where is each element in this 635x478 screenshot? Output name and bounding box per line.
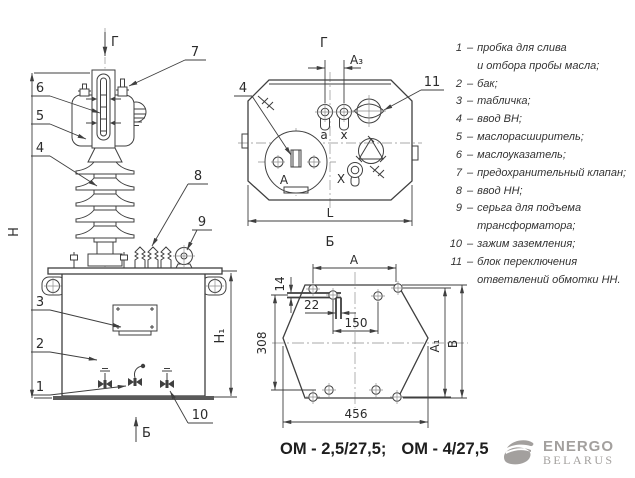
legend-item: 5–маслорасширитель; [441,129,635,147]
legend-dash: – [467,111,473,129]
legend-item-number: 3 [441,93,462,111]
callout-top-11: 11 [424,75,441,90]
dim-22: 22 [304,298,319,312]
breather-fitting [78,84,91,96]
logo-text: ENERGO BELARUS [543,439,614,467]
legend-item-number: 5 [441,129,462,147]
tank-lid [48,268,222,274]
hv-bushing-top: А [265,131,327,193]
terminal-label-a: a [320,128,327,142]
legend-item-text: маслоуказатель; [477,147,635,165]
dim-14: 14 [273,276,287,291]
dim-l: L [327,206,334,220]
legend-item-number: 2 [441,76,462,94]
legend-item: 11–блок переключения ответвлений обмотки… [441,254,635,290]
callout-4: 4 [36,141,44,156]
top-view-bottom-label: Б [326,235,335,250]
legend-item-text: зажим заземления; [477,236,635,254]
logo-line-energo: ENERGO [543,439,614,454]
legend-item-number: 4 [441,111,462,129]
legend-item-text: блок переключения ответвлений обмотки НН… [477,254,635,290]
legend-item-number: 10 [441,236,462,254]
dim-height-tank: H₁ [213,329,228,344]
legend-item: 9–серьга для подъема трансформатора; [441,200,635,236]
mounting-holes [306,281,405,404]
legend-item: 8–ввод НН; [441,183,635,201]
legend-item-number: 6 [441,147,462,165]
dim-a1: A₁ [428,339,442,352]
legend-item-text: табличка; [477,93,635,111]
lifting-lug [173,245,195,268]
legend-item-text: бак; [477,76,635,94]
legend-dash: – [467,200,473,236]
legend-dash: – [467,165,473,183]
legend-item-text: пробка для слива и отбора пробы масла; [477,40,635,76]
logo-swoosh-icon [500,438,537,468]
model-name-1: ОМ - 2,5/27,5; [280,440,386,458]
dim-150: 150 [345,316,368,330]
legend-item-text: ввод ВН; [477,111,635,129]
dim-a: A [350,253,359,267]
legend-item: 7–предохранительный клапан; [441,165,635,183]
legend-dash: – [467,254,473,290]
front-view-arrow-label-bottom: Б [142,426,151,441]
legend-item-number: 8 [441,183,462,201]
energo-belarus-logo: ENERGO BELARUS [500,438,614,468]
legend-dash: – [467,236,473,254]
legend-item-number: 11 [441,254,462,290]
callout-8: 8 [194,169,202,184]
legend-item: 6–маслоуказатель; [441,147,635,165]
callout-top-4: 4 [239,81,247,96]
top-view-label: Г [320,36,328,51]
legend-item: 3–табличка; [441,93,635,111]
dim-456: 456 [345,407,368,421]
legend-dash: – [467,183,473,201]
tank-base [53,396,214,400]
callout-1: 1 [36,380,44,395]
legend-item: 1–пробка для слива и отбора пробы масла; [441,40,635,76]
model-name-2: ОМ - 4/27,5 [401,440,488,458]
front-view-arrow-label-top: Г [111,35,119,50]
legend-item-text: серьга для подъема трансформатора; [477,200,635,236]
lv-bushings [135,247,171,268]
logo-line-belarus: BELARUS [543,454,614,467]
legend-item: 2–бак; [441,76,635,94]
legend-item-number: 9 [441,200,462,236]
callout-7: 7 [191,45,199,60]
callout-5: 5 [36,109,44,124]
tap-selector-symbol [356,136,386,164]
oil-expander [72,70,146,148]
safety-valve [116,79,129,96]
callout-10: 10 [192,408,209,423]
dim-a3: A₃ [350,53,363,67]
dim-b: B [446,340,460,348]
top-view: Г А a x [234,36,444,250]
callout-6: 6 [36,81,44,96]
transformer-dimension-drawing: Г H [0,0,635,478]
callout-2: 2 [36,337,44,352]
switch-block [352,95,386,127]
legend-dash: – [467,129,473,147]
legend-item-text: маслорасширитель; [477,129,635,147]
legend-dash: – [467,40,473,76]
hv-terminal-X: X [337,163,363,187]
dim-308: 308 [255,332,269,355]
legend-item: 4–ввод ВН; [441,111,635,129]
legend-dash: – [467,93,473,111]
parts-legend: 1–пробка для слива и отбора пробы масла;… [441,40,635,289]
dim-height-total: H [7,227,22,237]
legend-item-number: 7 [441,165,462,183]
callout-3: 3 [36,295,44,310]
model-caption: ОМ - 2,5/27,5;ОМ - 4/27,5 [280,440,489,459]
front-view: Г H [7,28,237,442]
terminal-label-A: А [280,173,289,187]
terminal-label-X: X [337,172,345,186]
legend-item-text: ввод НН; [477,183,635,201]
legend-item-text: предохранительный клапан; [477,165,635,183]
terminal-label-x: x [340,128,347,142]
legend-item: 10–зажим заземления; [441,236,635,254]
legend-dash: – [467,147,473,165]
legend-item-number: 1 [441,40,462,76]
hv-bushing [76,148,134,266]
lv-terminals-top: a x [315,102,354,142]
bottom-view: A 14 22 150 308 456 A₁ B [255,253,468,428]
legend-dash: – [467,76,473,94]
callout-9: 9 [198,215,206,230]
